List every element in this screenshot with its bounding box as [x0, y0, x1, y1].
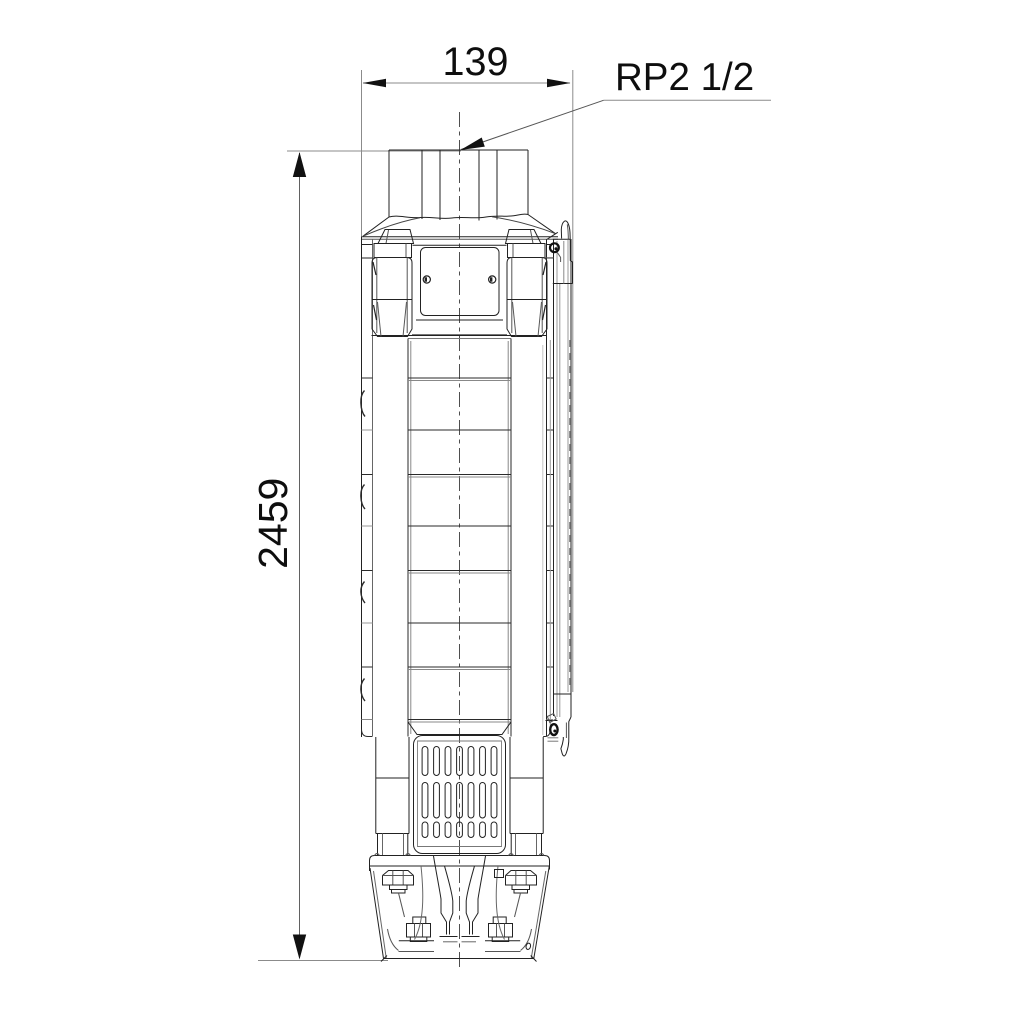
svg-text:139: 139	[443, 40, 509, 84]
svg-text:RP2 1/2: RP2 1/2	[615, 56, 754, 99]
svg-text:2459: 2459	[250, 478, 296, 569]
